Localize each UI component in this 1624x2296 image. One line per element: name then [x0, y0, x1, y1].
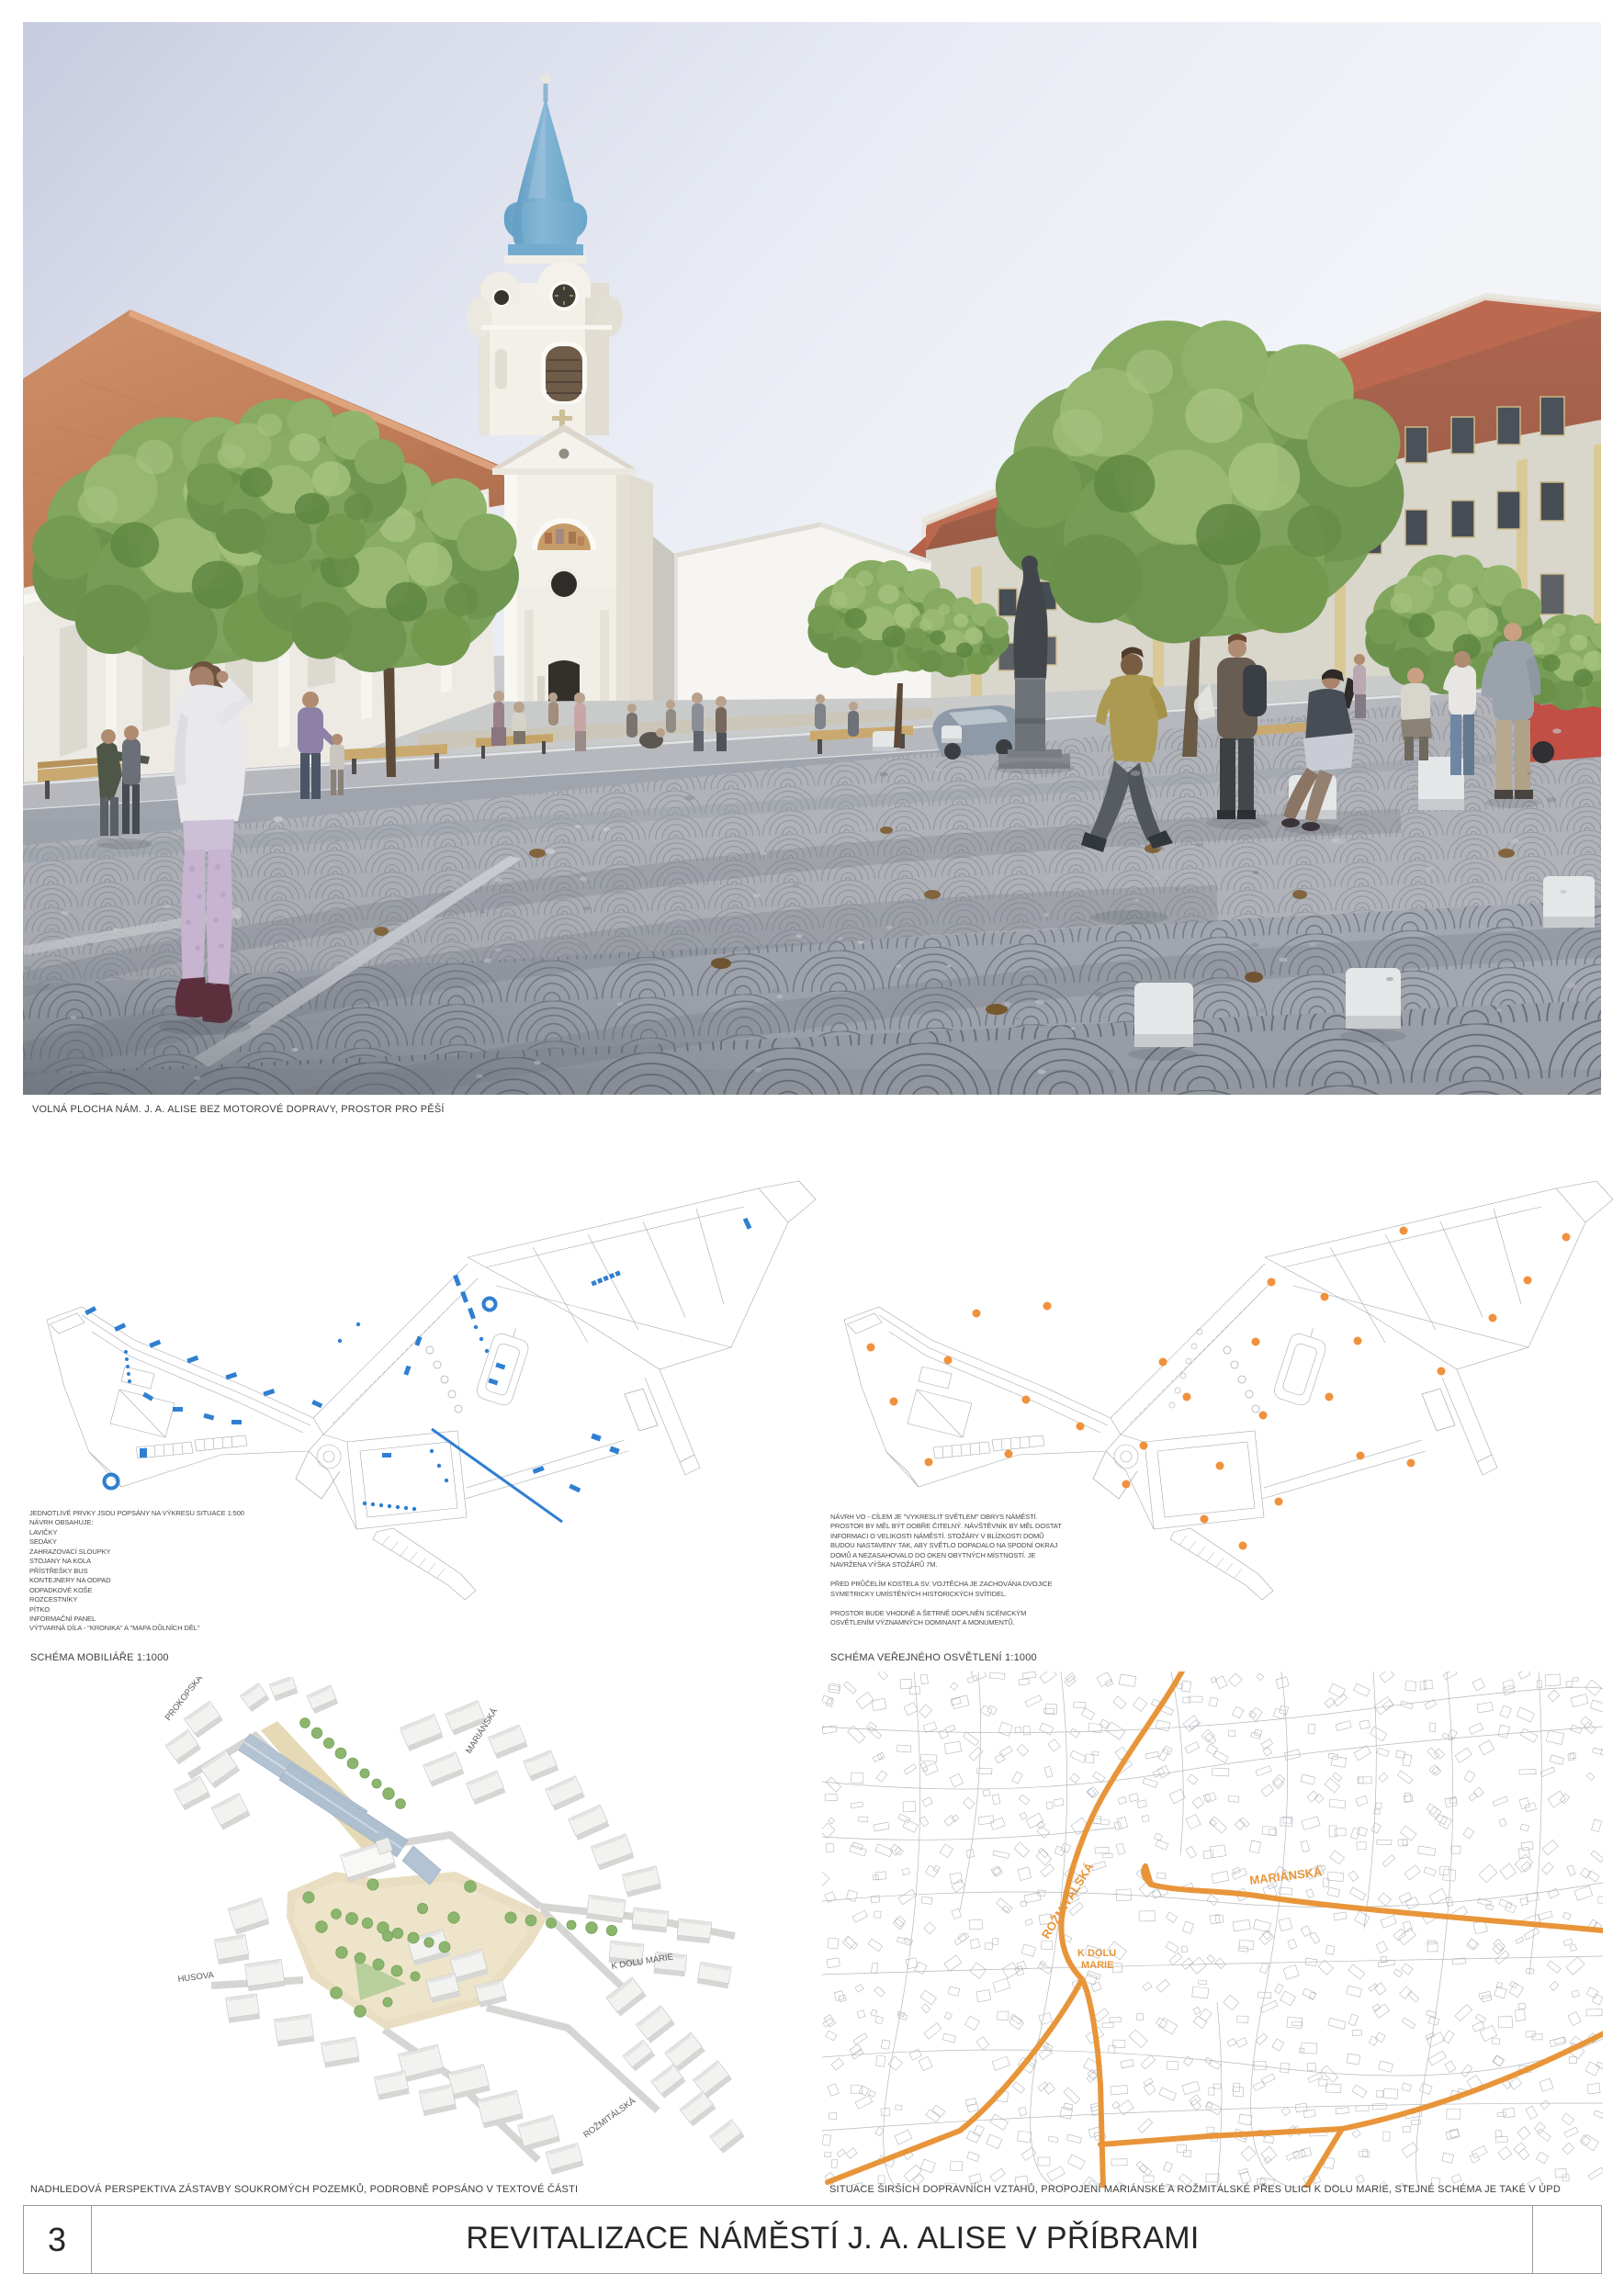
svg-text:MARIE: MARIE — [1081, 1960, 1113, 1971]
svg-text:ROŽMITÁLSKÁ: ROŽMITÁLSKÁ — [1039, 1860, 1097, 1941]
svg-text:K DOLU: K DOLU — [1077, 1948, 1116, 1959]
svg-text:ROŽMITÁLSKÁ: ROŽMITÁLSKÁ — [581, 2096, 637, 2141]
svg-text:HUSOVA: HUSOVA — [177, 1970, 215, 1985]
svg-text:MARIÁNSKÁ: MARIÁNSKÁ — [1249, 1864, 1324, 1887]
